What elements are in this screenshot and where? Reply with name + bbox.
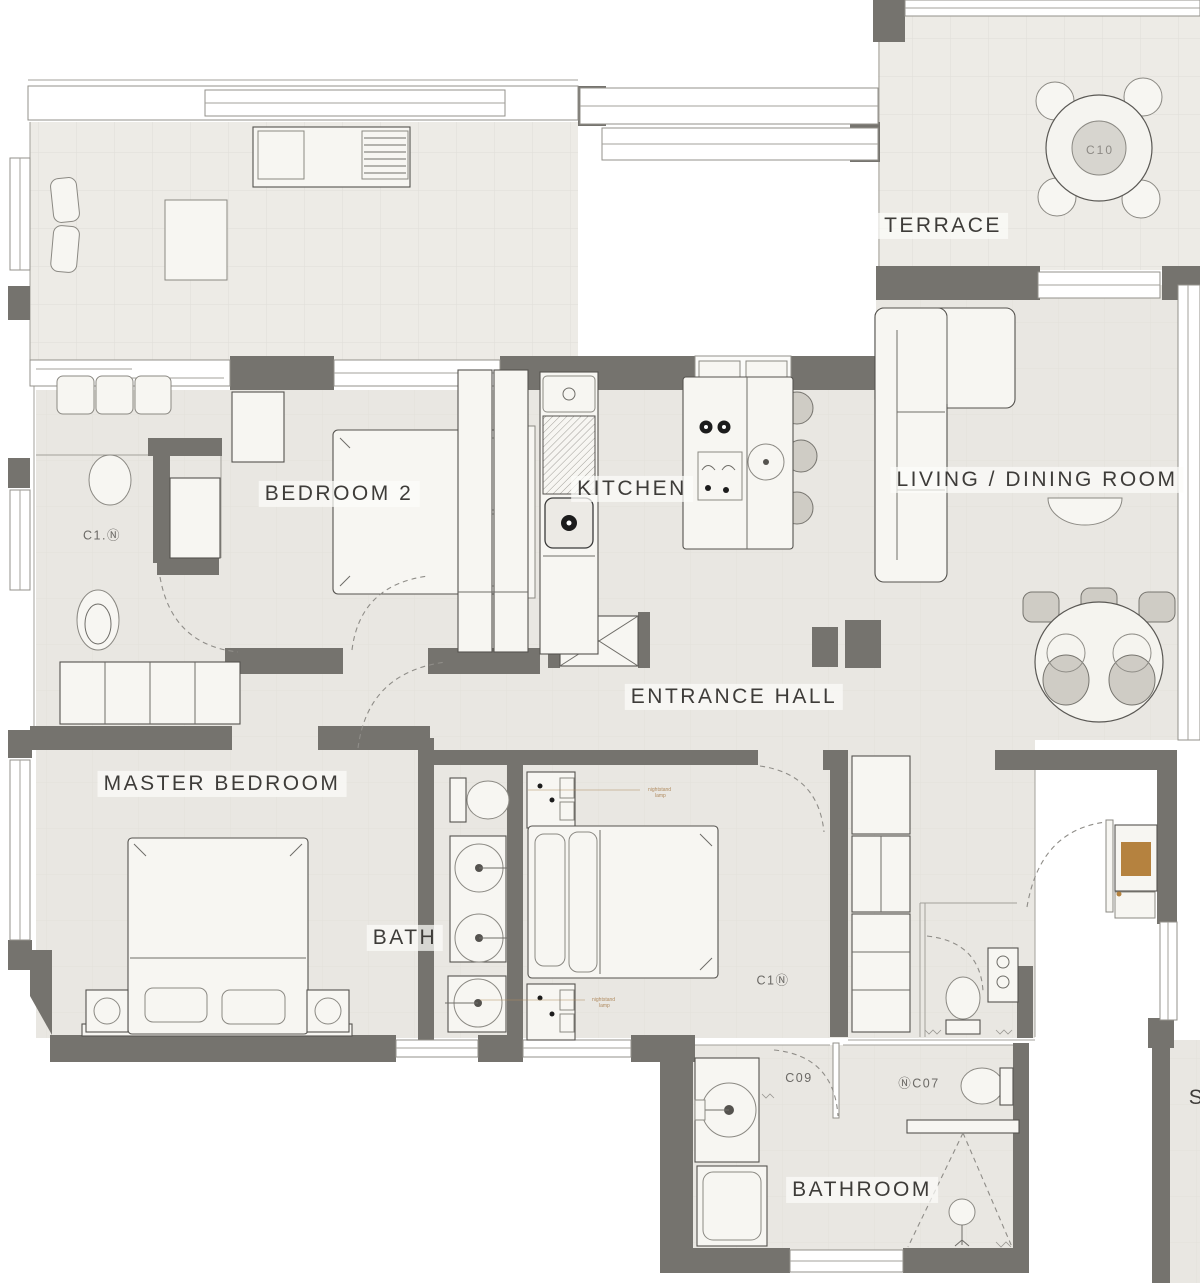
room-label-terrace: TERRACE xyxy=(878,213,1008,239)
code-c1n-wc: C1.Ⓝ xyxy=(83,525,121,544)
code-c07: ⓃC07 xyxy=(898,1073,939,1092)
code-c09: C09 xyxy=(785,1071,812,1085)
code-c10: C10 xyxy=(1086,143,1114,157)
toilet-icon xyxy=(961,1068,1003,1104)
svg-text:lamp: lamp xyxy=(655,793,666,799)
bath-fixtures xyxy=(445,778,509,1032)
toilet-icon xyxy=(77,590,119,650)
floor-plan-drawing: nightstand lamp nightstand lamp xyxy=(0,0,1200,1283)
shower-head-icon xyxy=(949,1199,975,1225)
room-label-bedroom2: BEDROOM 2 xyxy=(259,481,420,507)
dressing-cabinets xyxy=(60,662,240,724)
code-c1n-bedroom3: C1Ⓝ xyxy=(757,970,790,989)
wc-fixture-icon xyxy=(89,455,131,505)
kitchen-counter xyxy=(458,370,598,654)
kitchen-island xyxy=(683,377,817,549)
room-label-kitchen: KITCHEN xyxy=(571,476,693,502)
room-label-partial: S xyxy=(1183,1085,1200,1111)
room-label-master-bedroom: MASTER BEDROOM xyxy=(98,771,347,797)
toilet-icon xyxy=(467,781,509,819)
room-label-bathroom: BATHROOM xyxy=(786,1177,938,1203)
toilet-tank xyxy=(450,778,466,822)
door-leaf xyxy=(1106,820,1113,912)
room-label-entrance-hall: ENTRANCE HALL xyxy=(625,684,843,710)
shelf-icon xyxy=(907,1120,1019,1133)
desk-nook xyxy=(1106,820,1157,918)
lamp-icon xyxy=(94,998,120,1024)
floor-plan: nightstand lamp nightstand lamp xyxy=(0,0,1200,1283)
room-label-bath: BATH xyxy=(367,925,443,951)
closet-icon xyxy=(170,478,220,558)
terrace-bbq-counter xyxy=(253,127,410,187)
desk-chair-icon xyxy=(1121,842,1151,876)
lamp-icon xyxy=(315,998,341,1024)
corridor-wardrobes xyxy=(852,756,910,1032)
room-label-living-dining: LIVING / DINING ROOM xyxy=(890,467,1183,493)
svg-text:lamp: lamp xyxy=(599,1003,610,1009)
toilet-icon xyxy=(946,977,980,1019)
